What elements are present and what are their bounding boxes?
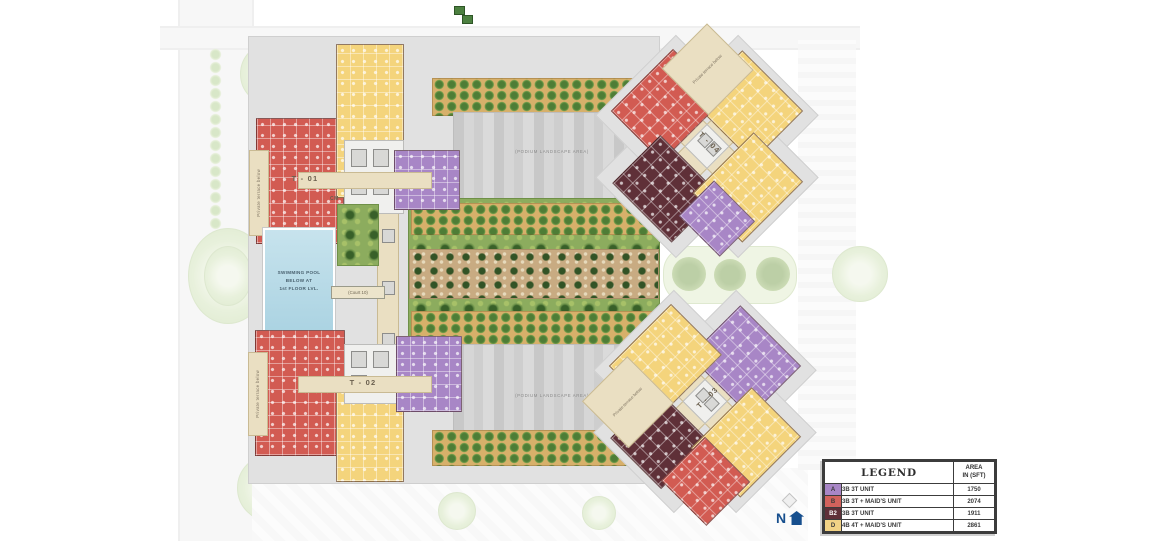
plaza-tree: [438, 492, 476, 530]
north-label: N: [776, 510, 786, 526]
roundabout-center: [204, 246, 252, 306]
legend-chip-d: D: [825, 520, 842, 532]
legend-desc-b2: 3B 3T UNIT: [842, 508, 954, 520]
legend-area-a: 1750: [954, 484, 995, 496]
elevator-core: [382, 229, 395, 243]
legend-area-b2: 1911: [954, 508, 995, 520]
private-terrace-label: Private terrace below: [256, 169, 262, 217]
legend-row-d: D 4B 4T + MAID'S UNIT 2861: [825, 520, 995, 532]
pool-label-line2: BELOW AT: [278, 277, 321, 285]
legend-area-d: 2861: [954, 520, 995, 532]
legend-chip-a: A: [825, 484, 842, 496]
swimming-pool: SWIMMING POOL BELOW AT 1st FLOOR LVL.: [263, 228, 335, 334]
north-indicator: N: [776, 510, 804, 526]
legend-row-a: A 3B 3T UNIT 1750: [825, 484, 995, 496]
t01-label: T - 01: [282, 174, 328, 183]
legend-area-b: 2074: [954, 496, 995, 508]
legend-title: LEGEND: [825, 462, 954, 484]
legend-desc-a: 3B 3T UNIT: [842, 484, 954, 496]
median-tree: [756, 257, 790, 291]
pool-label: SWIMMING POOL BELOW AT 1st FLOOR LVL.: [278, 269, 321, 292]
legend-chip-b: B: [825, 496, 842, 508]
legend-area-line1: AREA: [954, 465, 994, 473]
site-plan: (PODIUM LANDSCAPE AREA) (PODIUM LANDSCAP…: [0, 0, 1170, 541]
plaza-tree: [582, 496, 616, 530]
north-arrow-icon: [789, 511, 804, 525]
central-garden: [408, 198, 660, 348]
court-label-box: (Court 10): [331, 286, 385, 299]
legend-chip-b2: B2: [825, 508, 842, 520]
elevator-core: [373, 351, 389, 368]
ornamental-garden-circle: [832, 246, 888, 302]
t02-wing-purple: [396, 336, 462, 412]
t02-private-terrace: Private terrace below: [248, 352, 268, 436]
legend-desc-d: 4B 4T + MAID'S UNIT: [842, 520, 954, 532]
elevator-core: [373, 149, 389, 167]
legend-row-b: B 3B 3T + MAID'S UNIT 2074: [825, 496, 995, 508]
central-walkway: [409, 249, 659, 299]
t01-private-terrace: Private terrace below: [249, 150, 269, 236]
pool-label-line1: SWIMMING POOL: [278, 269, 321, 277]
court-label: (Court 10): [348, 290, 368, 295]
legend-table: LEGEND AREA IN (SFT) A 3B 3T UNIT 1750 B…: [822, 459, 997, 534]
legend-area-line2: IN (SFT): [954, 473, 994, 481]
t02-wing-red: [255, 330, 345, 456]
site-marker: [454, 6, 465, 15]
private-terrace-label: Private terrace below: [691, 52, 725, 86]
t02-core: [344, 344, 402, 404]
t02-label: T - 02: [340, 378, 386, 387]
legend-desc-b: 3B 3T + MAID'S UNIT: [842, 496, 954, 508]
site-marker: [462, 15, 473, 24]
private-terrace-label: Private terrace below: [611, 385, 645, 419]
private-terrace-label: Private terrace below: [255, 370, 261, 418]
legend-area-header: AREA IN (SFT): [954, 462, 995, 484]
elevator-core: [351, 149, 367, 167]
pool-label-line3: 1st FLOOR LVL.: [278, 285, 321, 293]
pocket-court: [337, 204, 379, 266]
legend-row-b2: B2 3B 3T UNIT 1911: [825, 508, 995, 520]
cm-label: CM: [330, 196, 339, 202]
elevator-core: [351, 351, 367, 368]
